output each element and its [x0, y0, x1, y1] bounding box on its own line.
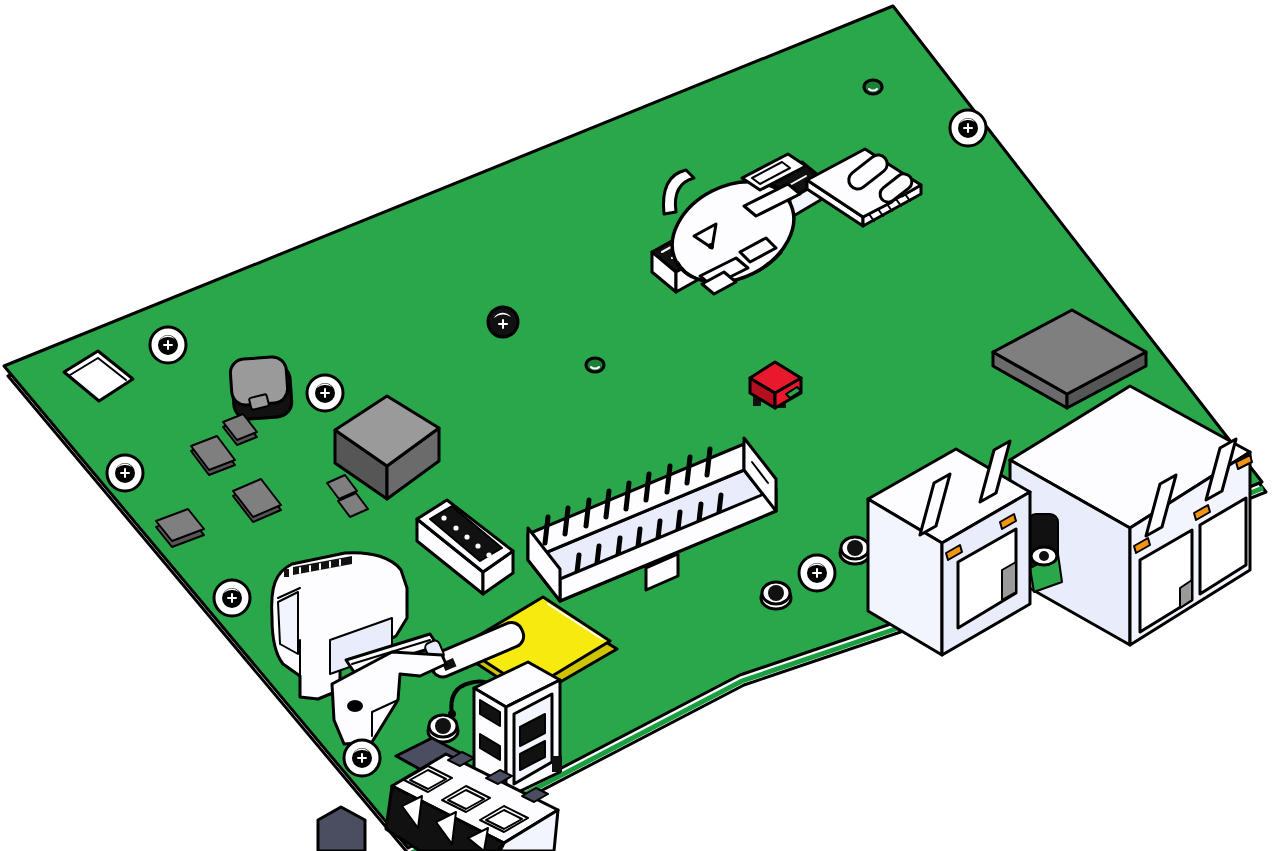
standoff-cap: [840, 537, 870, 564]
tooling-hole: [864, 80, 882, 94]
mounting-screw: [344, 740, 380, 776]
mounting-screw: [150, 327, 186, 363]
standoff-cap: [761, 582, 791, 609]
cad-viewport: [0, 0, 1281, 851]
black-standoff: [488, 307, 518, 337]
inductor: [229, 356, 292, 420]
barrel-connector: [1028, 514, 1062, 592]
mounting-screw: [307, 375, 343, 411]
mounting-screw: [799, 555, 835, 591]
mounting-screw: [214, 580, 250, 616]
pcb-render: [0, 0, 1281, 851]
mounting-screw: [950, 110, 986, 146]
slate-component: [318, 807, 365, 851]
mounting-screw: [107, 455, 143, 491]
tooling-hole: [586, 358, 604, 372]
